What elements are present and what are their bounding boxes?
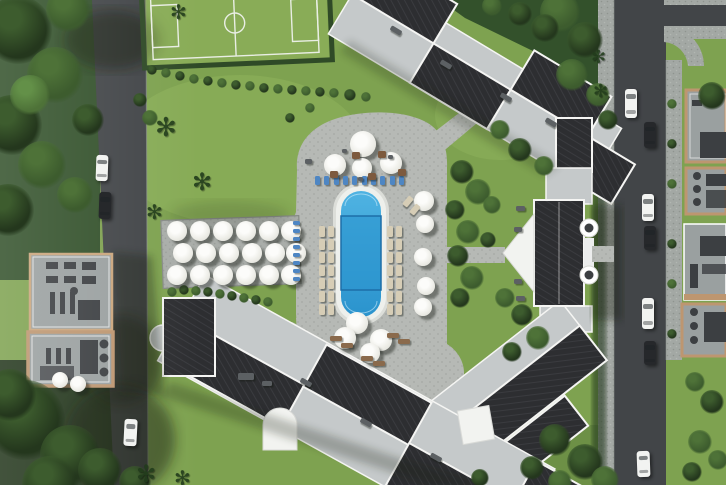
- path-to-pavilion: [447, 247, 505, 263]
- right-building-2: [686, 168, 726, 214]
- right-building-3: [684, 224, 726, 300]
- swimming-pool: [333, 183, 389, 325]
- base-illustration: [0, 0, 726, 485]
- right-building-1: [686, 90, 726, 162]
- path-to-road: [592, 246, 614, 262]
- right-sidewalk: [666, 60, 682, 360]
- aerial-render-scene: ✻✻✻✻✻✻✻✻: [0, 0, 726, 485]
- right-building-4: [682, 304, 726, 356]
- mist-overlay: [0, 0, 200, 485]
- white-canopy: [457, 405, 494, 444]
- top-cross-road: [664, 4, 726, 26]
